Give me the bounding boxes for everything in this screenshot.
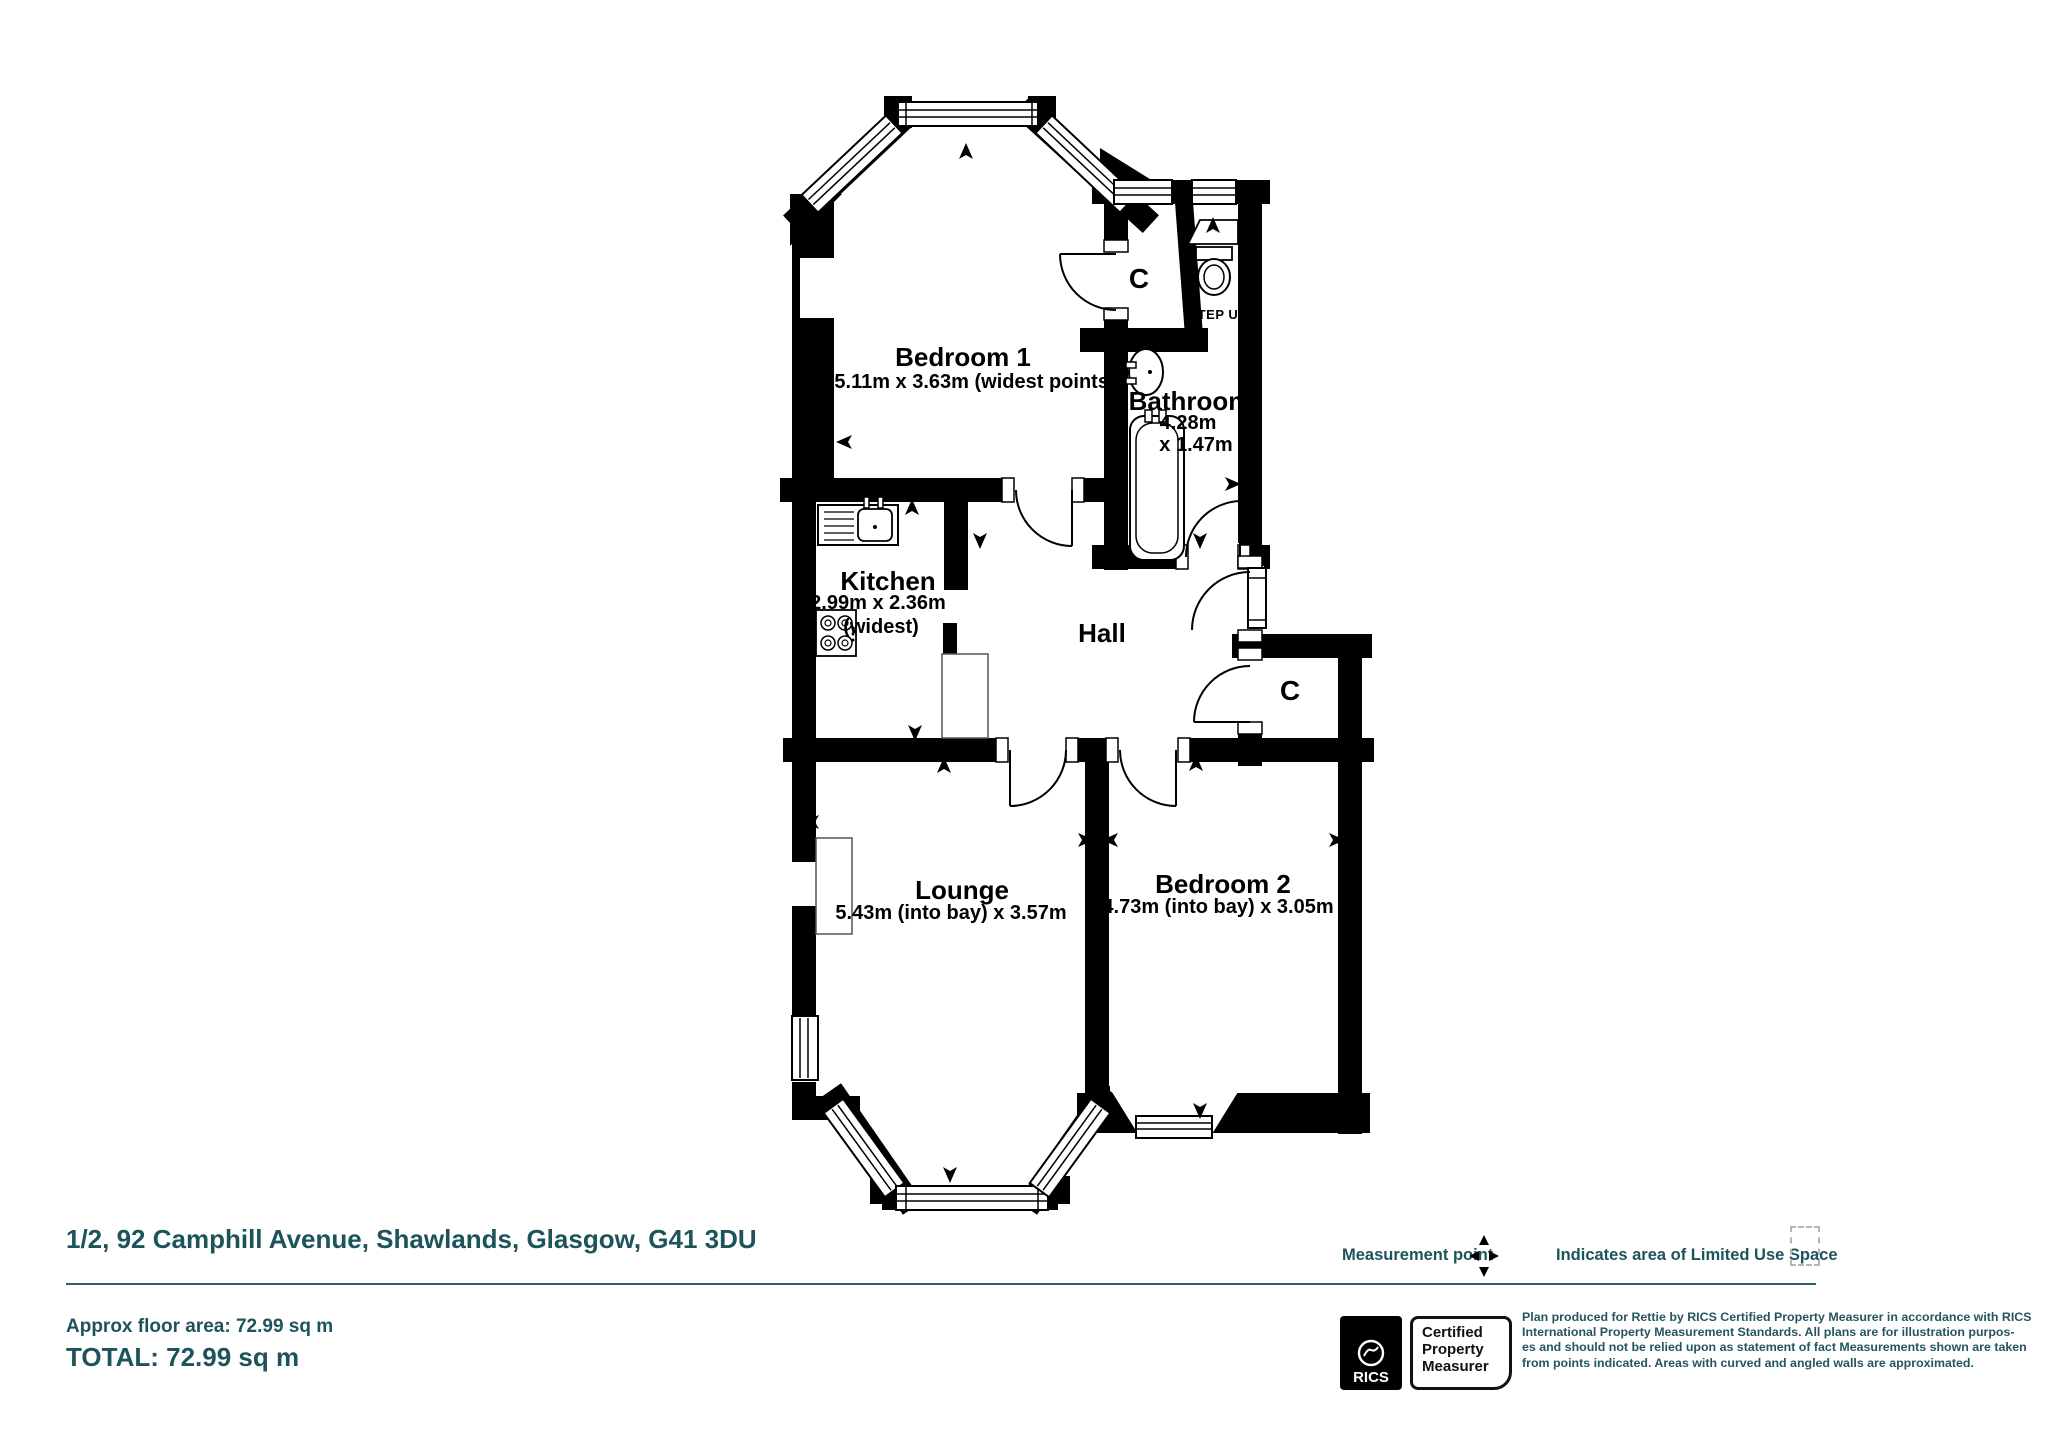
- badge-line-2: Property: [1422, 1342, 1509, 1359]
- room-dims-lounge: 5.43m (into bay) x 3.57m: [835, 903, 1066, 924]
- room-dims-bedroom2: 4.73m (into bay) x 3.05m: [1102, 897, 1333, 918]
- room-dims-bathroom-2: x 1.47m: [1159, 435, 1232, 456]
- disclaimer-line-3: es and should not be relied upon as stat…: [1522, 1340, 2032, 1355]
- property-address: 1/2, 92 Camphill Avenue, Shawlands, Glas…: [66, 1224, 757, 1255]
- bedroom2-window: [1136, 1116, 1212, 1138]
- wc-window: [1192, 180, 1236, 204]
- cupboard-label-hall: C: [1280, 676, 1300, 705]
- limited-use-space-icon: [1790, 1226, 1820, 1266]
- cupboard-label-top: C: [1129, 264, 1149, 293]
- lounge-bay-window-center: [896, 1186, 1048, 1210]
- bay-window-top-center: [898, 102, 1038, 126]
- kitchen-sink-icon: [818, 497, 898, 545]
- cupboard-window: [1114, 180, 1172, 204]
- room-label-hall: Hall: [1078, 620, 1126, 647]
- disclaimer-line-2: International Property Measurement Stand…: [1522, 1325, 2032, 1340]
- measurement-point-icon: [1466, 1233, 1502, 1279]
- certified-property-measurer-badge: Certified Property Measurer: [1410, 1316, 1512, 1390]
- room-label-bedroom1: Bedroom 1: [895, 344, 1031, 371]
- footer-divider: [66, 1283, 1816, 1285]
- room-dims-bathroom-1: 4.28m: [1160, 413, 1217, 434]
- room-label-bedroom2: Bedroom 2: [1155, 871, 1291, 898]
- bay-window-top-left: [802, 115, 903, 212]
- kitchen-unit-outline: [942, 654, 988, 738]
- rics-logo: RICS: [1340, 1316, 1402, 1390]
- rics-lion-icon: [1354, 1336, 1388, 1370]
- disclaimer-line-1: Plan produced for Rettie by RICS Certifi…: [1522, 1310, 2032, 1325]
- room-dims-bedroom1: 5.11m x 3.63m (widest points): [834, 372, 1115, 393]
- lounge-bay-window-left: [824, 1099, 905, 1197]
- room-label-lounge: Lounge: [915, 877, 1009, 904]
- badge-line-3: Measurer: [1422, 1359, 1509, 1376]
- room-dims-kitchen-note: (widest): [843, 617, 919, 638]
- approx-floor-area: Approx floor area: 72.99 sq m: [66, 1316, 333, 1338]
- rics-wordmark: RICS: [1353, 1370, 1389, 1390]
- step-up-label: STEP UP: [1189, 308, 1248, 322]
- lounge-side-window: [792, 1016, 818, 1080]
- total-floor-area: TOTAL: 72.99 sq m: [66, 1342, 299, 1373]
- walls: [792, 114, 1362, 1198]
- floorplan-page: Bedroom 1 5.11m x 3.63m (widest points) …: [0, 0, 2048, 1448]
- disclaimer-line-4: from points indicated. Areas with curved…: [1522, 1356, 2032, 1371]
- entrance-door-frame: [1248, 568, 1266, 628]
- badge-line-1: Certified: [1422, 1325, 1509, 1342]
- room-dims-kitchen: 2.99m x 2.36m: [810, 593, 946, 614]
- disclaimer-text: Plan produced for Rettie by RICS Certifi…: [1522, 1310, 2032, 1371]
